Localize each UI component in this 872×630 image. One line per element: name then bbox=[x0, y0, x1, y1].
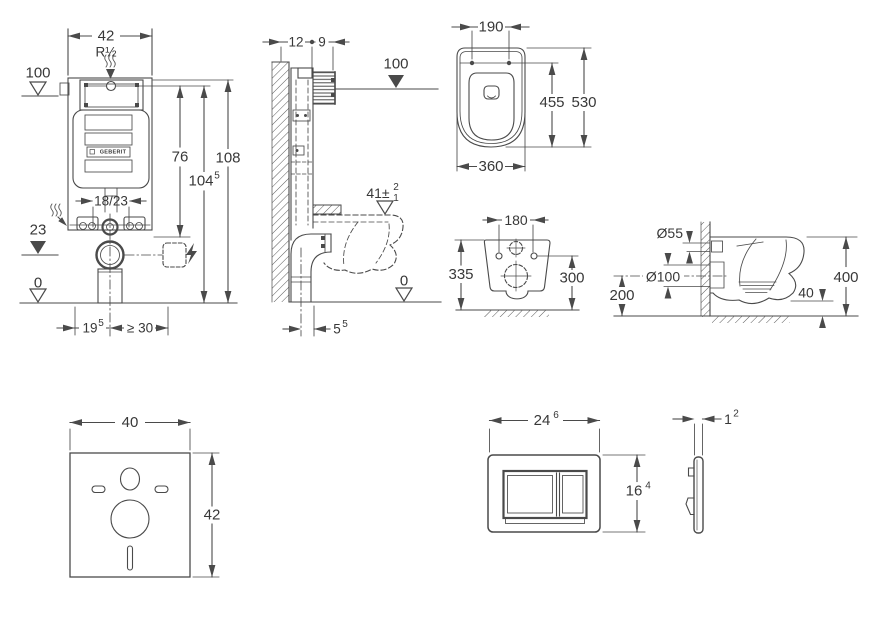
technical-drawing-sheet: 42 R½ 100 GEBERIT bbox=[0, 0, 872, 630]
dim-bolt-spacing-label: 18/23 bbox=[94, 194, 128, 209]
level-marker-100: 100 bbox=[22, 65, 58, 97]
dim-200-label: 200 bbox=[609, 287, 634, 304]
dim-mat-height-label: 42 bbox=[204, 507, 221, 524]
dim-19-sup: 5 bbox=[98, 318, 104, 329]
level-100-side-label: 100 bbox=[383, 56, 408, 73]
dim-outlet-label: Ø100 bbox=[646, 269, 680, 285]
dim-104-label: 104 bbox=[188, 173, 213, 190]
level-23-label: 23 bbox=[30, 222, 47, 239]
dim-530-label: 530 bbox=[571, 94, 596, 111]
seat-height-marker: 41± 2 1 bbox=[366, 182, 399, 214]
dim-41-label: 41± bbox=[366, 185, 390, 201]
dim-41-tol-lower: 1 bbox=[393, 193, 399, 204]
level-marker-0-side: 0 bbox=[396, 273, 412, 302]
cistern-front-view: 42 R½ 100 GEBERIT bbox=[20, 28, 244, 337]
drawing-svg: 42 R½ 100 GEBERIT bbox=[0, 0, 872, 630]
flush-plate-front-view: 24 6 16 4 bbox=[488, 410, 654, 532]
full-flush-button bbox=[508, 476, 553, 514]
dim-plate-width-label: 24 bbox=[534, 412, 551, 429]
floor-hatch bbox=[484, 310, 549, 317]
supply-thread-label: R½ bbox=[95, 45, 116, 60]
dim-76-label: 76 bbox=[172, 149, 189, 166]
wall-hatch bbox=[701, 222, 710, 317]
dim-plate-thickness-sup: 2 bbox=[733, 409, 739, 420]
electrical-box-outline bbox=[163, 243, 186, 267]
dim-108-label: 108 bbox=[215, 150, 240, 167]
dim-400-label: 400 bbox=[833, 269, 858, 286]
level-marker-0: 0 bbox=[30, 275, 46, 303]
flush-box bbox=[313, 72, 335, 104]
level-0-side-label: 0 bbox=[400, 273, 408, 290]
dim-300-label: 300 bbox=[559, 270, 584, 287]
wall-hatch bbox=[272, 62, 289, 302]
dim-335-label: 335 bbox=[448, 266, 473, 283]
sound-insulation-view: 40 42 bbox=[70, 414, 227, 577]
dim-plate-width-sup: 6 bbox=[553, 410, 559, 421]
dim-plate-height-sup: 4 bbox=[645, 481, 651, 492]
wc-dashed-outline bbox=[313, 215, 403, 273]
wc-side-view: Ø55 Ø100 200 40 400 bbox=[605, 222, 862, 328]
dim-5-label: 5 bbox=[333, 322, 341, 337]
dim-12-label: 12 bbox=[288, 35, 303, 50]
electrical-connection-icon bbox=[186, 243, 197, 264]
water-connection-icon bbox=[51, 204, 69, 228]
level-100-label: 100 bbox=[25, 65, 50, 82]
floor-hatch bbox=[712, 316, 790, 323]
dim-9-label: 9 bbox=[318, 35, 326, 50]
wc-rear-view: 180 335 300 bbox=[446, 212, 587, 317]
dim-180-label: 180 bbox=[504, 212, 528, 228]
brand-logo: GEBERIT bbox=[100, 149, 127, 155]
dim-5-sup: 5 bbox=[342, 319, 348, 330]
dim-40-gap-label: 40 bbox=[798, 285, 814, 301]
dim-plate-height-label: 16 bbox=[626, 483, 643, 500]
level-marker-100-side: 100 bbox=[336, 56, 438, 90]
dim-455-label: 455 bbox=[539, 94, 564, 111]
dim-inlet-label: Ø55 bbox=[657, 225, 684, 241]
dim-plate-thickness-label: 1 bbox=[724, 411, 732, 427]
level-marker-23: 23 bbox=[22, 222, 58, 256]
dim-104-sup: 5 bbox=[214, 171, 220, 182]
half-flush-button bbox=[563, 476, 584, 514]
dim-19-label: 19 bbox=[82, 321, 97, 336]
dim-190-label: 190 bbox=[478, 19, 503, 36]
flush-plate-side-view: 1 2 bbox=[673, 409, 739, 534]
flush-pipe-stub bbox=[313, 205, 341, 214]
dim-mat-width-label: 40 bbox=[122, 414, 139, 431]
cistern-side-view: 12 9 100 41± 2 bbox=[263, 34, 441, 337]
wc-top-view: 190 455 530 360 bbox=[452, 19, 599, 176]
dim-clearance-label: ≥ 30 bbox=[127, 321, 153, 336]
dim-360-label: 360 bbox=[478, 158, 503, 175]
dim-41-tol-upper: 2 bbox=[393, 182, 399, 193]
dim-width-label: 42 bbox=[98, 28, 115, 45]
